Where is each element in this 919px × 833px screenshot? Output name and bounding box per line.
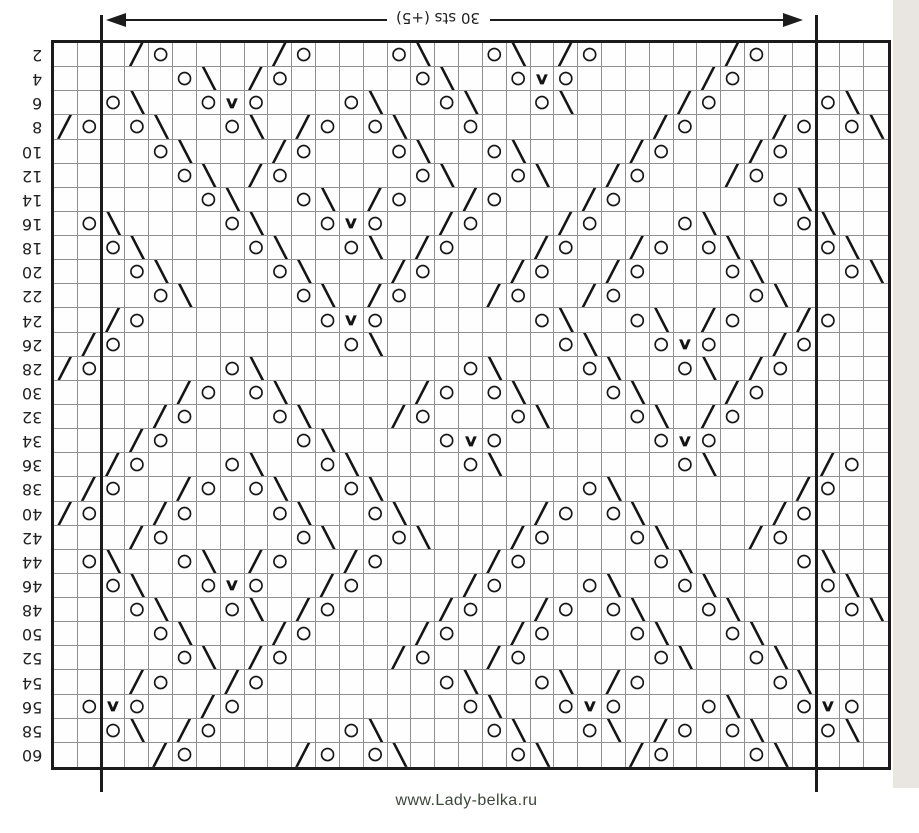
grid-cell — [340, 140, 364, 164]
ssk-icon: ╲ — [678, 550, 692, 573]
ssk-icon: ╲ — [702, 212, 716, 235]
yarn-over-icon: ○ — [153, 432, 168, 449]
double-decrease-icon: ∨ — [677, 433, 693, 449]
yarn-over-icon: ○ — [630, 312, 645, 329]
grid-cell — [149, 550, 173, 574]
grid-cell — [650, 67, 674, 91]
grid-cell: ○ — [78, 115, 102, 139]
grid-cell — [650, 43, 674, 67]
k2tog-icon: ╱ — [797, 477, 811, 500]
grid-cell — [864, 453, 888, 477]
grid-cell — [483, 526, 507, 550]
grid-cell: ○ — [102, 333, 126, 357]
grid-cell: ○ — [602, 284, 626, 308]
k2tog-icon: ╱ — [821, 453, 835, 476]
grid-cell — [721, 91, 745, 115]
grid-cell: ○ — [745, 284, 769, 308]
row-number-label: 50 — [4, 622, 46, 646]
grid-cell — [149, 236, 173, 260]
k2tog-icon: ╱ — [726, 43, 740, 66]
grid-cell — [817, 526, 841, 550]
grid-cell — [674, 43, 698, 67]
grid-cell — [78, 91, 102, 115]
grid-cell: ╱ — [292, 743, 316, 767]
grid-cell — [864, 212, 888, 236]
yarn-over-icon: ○ — [749, 384, 764, 401]
grid-cell — [578, 453, 602, 477]
grid-cell: ○ — [745, 646, 769, 670]
ssk-icon: ╲ — [392, 115, 406, 138]
ssk-icon: ╲ — [750, 622, 764, 645]
grid-cell — [745, 91, 769, 115]
grid-cell — [864, 429, 888, 453]
grid-cell — [554, 429, 578, 453]
grid-cell — [435, 574, 459, 598]
row-number-label: 34 — [4, 429, 46, 453]
grid-cell — [173, 91, 197, 115]
grid-cell — [388, 333, 412, 357]
grid-cell — [459, 719, 483, 743]
grid-cell: ○ — [364, 115, 388, 139]
ssk-icon: ╲ — [154, 115, 168, 138]
grid-cell — [149, 695, 173, 719]
grid-cell: ○ — [650, 550, 674, 574]
grid-cell — [364, 646, 388, 670]
grid-cell — [554, 164, 578, 188]
k2tog-icon: ╱ — [178, 719, 192, 742]
grid-cell — [78, 743, 102, 767]
grid-cell — [554, 140, 578, 164]
grid-cell: ○ — [554, 598, 578, 622]
grid-cell — [125, 743, 149, 767]
k2tog-icon: ╱ — [225, 671, 239, 694]
grid-cell — [435, 405, 459, 429]
yarn-over-icon: ○ — [606, 601, 621, 618]
arrow-line-left — [123, 19, 387, 21]
yarn-over-icon: ○ — [129, 263, 144, 280]
yarn-over-icon: ○ — [678, 456, 693, 473]
row-number-text: 8 — [32, 119, 42, 135]
row-number-text: 12 — [22, 168, 42, 184]
grid-cell — [721, 743, 745, 767]
grid-cell: ○ — [507, 550, 531, 574]
grid-cell: ○ — [602, 598, 626, 622]
yarn-over-icon: ○ — [773, 360, 788, 377]
grid-cell — [411, 333, 435, 357]
grid-cell — [674, 188, 698, 212]
grid-cell — [149, 477, 173, 501]
grid-cell — [745, 429, 769, 453]
grid-cell — [745, 502, 769, 526]
grid-cell: ○ — [245, 381, 269, 405]
grid-cell — [221, 502, 245, 526]
grid-cell: ╲ — [507, 719, 531, 743]
grid-cell: ○ — [817, 574, 841, 598]
grid-cell: ╲ — [745, 622, 769, 646]
yarn-over-icon: ○ — [558, 336, 573, 353]
yarn-over-icon: ○ — [749, 287, 764, 304]
grid-cell: ╲ — [364, 333, 388, 357]
ssk-icon: ╲ — [273, 477, 287, 500]
row-number-text: 20 — [22, 264, 42, 280]
grid-cell — [769, 212, 793, 236]
grid-cell — [102, 598, 126, 622]
grid-cell: ╲ — [602, 477, 626, 501]
grid-cell: ○ — [149, 429, 173, 453]
yarn-over-icon: ○ — [678, 118, 693, 135]
grid-cell: ╲ — [125, 719, 149, 743]
grid-cell — [435, 140, 459, 164]
grid-cell: ╱ — [531, 502, 555, 526]
grid-cell: ○ — [697, 695, 721, 719]
k2tog-icon: ╱ — [750, 140, 764, 163]
grid-cell — [340, 670, 364, 694]
grid-cell: ○ — [531, 308, 555, 332]
yarn-over-icon: ○ — [249, 94, 264, 111]
grid-cell — [864, 405, 888, 429]
k2tog-icon: ╱ — [273, 43, 287, 66]
grid-cell — [435, 695, 459, 719]
row-number-text: 18 — [22, 240, 42, 256]
row-number-label: 14 — [4, 188, 46, 212]
yarn-over-icon: ○ — [797, 505, 812, 522]
yarn-over-icon: ○ — [129, 456, 144, 473]
row-number-text: 40 — [22, 506, 42, 522]
grid-cell — [388, 598, 412, 622]
grid-cell — [483, 405, 507, 429]
grid-cell — [531, 115, 555, 139]
yarn-over-icon: ○ — [463, 118, 478, 135]
grid-cell — [507, 695, 531, 719]
grid-cell — [864, 381, 888, 405]
grid-cell — [435, 308, 459, 332]
grid-cell — [793, 67, 817, 91]
ssk-icon: ╲ — [368, 91, 382, 114]
k2tog-icon: ╱ — [511, 260, 525, 283]
ssk-icon: ╲ — [845, 719, 859, 742]
k2tog-icon: ╱ — [559, 212, 573, 235]
ssk-icon: ╲ — [130, 719, 144, 742]
k2tog-icon: ╱ — [249, 550, 263, 573]
grid-cell — [817, 43, 841, 67]
grid-cell — [292, 236, 316, 260]
yarn-over-icon: ○ — [106, 94, 121, 111]
grid-cell — [340, 598, 364, 622]
grid-cell: ╲ — [793, 188, 817, 212]
grid-cell — [578, 405, 602, 429]
grid-cell: ╲ — [316, 429, 340, 453]
k2tog-icon: ╱ — [535, 502, 549, 525]
grid-cell: ○ — [507, 646, 531, 670]
grid-cell: ╱ — [102, 453, 126, 477]
grid-cell — [435, 502, 459, 526]
grid-cell — [745, 67, 769, 91]
grid-cell: ╲ — [697, 574, 721, 598]
grid-cell — [197, 526, 221, 550]
grid-cell: ╲ — [388, 115, 412, 139]
grid-cell — [316, 140, 340, 164]
grid-cell — [697, 260, 721, 284]
yarn-over-icon: ○ — [463, 456, 478, 473]
grid-cell — [864, 743, 888, 767]
grid-cell: ○ — [793, 212, 817, 236]
grid-cell — [793, 43, 817, 67]
yarn-over-icon: ○ — [368, 312, 383, 329]
yarn-over-icon: ○ — [177, 649, 192, 666]
grid-cell — [54, 260, 78, 284]
grid-cell — [197, 670, 221, 694]
grid-cell — [674, 695, 698, 719]
grid-cell — [864, 670, 888, 694]
grid-cell — [554, 477, 578, 501]
ssk-icon: ╲ — [368, 477, 382, 500]
grid-cell: ○ — [268, 260, 292, 284]
grid-cell: ╲ — [292, 502, 316, 526]
grid-cell: ╲ — [483, 357, 507, 381]
grid-cell — [602, 308, 626, 332]
grid-cell — [54, 598, 78, 622]
grid-cell — [78, 453, 102, 477]
grid-cell — [54, 526, 78, 550]
grid-cell — [793, 719, 817, 743]
grid-cell: ╱ — [54, 357, 78, 381]
grid-cell: ╲ — [483, 695, 507, 719]
grid-cell — [531, 140, 555, 164]
grid-cell — [554, 453, 578, 477]
grid-cell — [483, 91, 507, 115]
grid-cell — [626, 477, 650, 501]
grid-cell — [578, 115, 602, 139]
grid-cell: ∨ — [817, 695, 841, 719]
grid-cell — [697, 526, 721, 550]
grid-cell: ○ — [435, 236, 459, 260]
grid-cell — [435, 357, 459, 381]
grid-cell — [721, 502, 745, 526]
grid-cell — [459, 381, 483, 405]
yarn-over-icon: ○ — [725, 722, 740, 739]
yarn-over-icon: ○ — [225, 456, 240, 473]
grid-cell: ○ — [340, 477, 364, 501]
yarn-over-icon: ○ — [630, 674, 645, 691]
grid-cell — [578, 622, 602, 646]
grid-cell — [817, 429, 841, 453]
grid-cell — [864, 526, 888, 550]
grid-cell: ○ — [245, 477, 269, 501]
grid-cell — [793, 357, 817, 381]
grid-cell — [864, 477, 888, 501]
grid-cell — [721, 429, 745, 453]
grid-cell — [292, 477, 316, 501]
grid-cell: ╲ — [173, 284, 197, 308]
yarn-over-icon: ○ — [106, 722, 121, 739]
grid-cell: ╲ — [411, 43, 435, 67]
k2tog-icon: ╱ — [702, 405, 716, 428]
yarn-over-icon: ○ — [773, 191, 788, 208]
grid-cell — [745, 212, 769, 236]
grid-cell — [650, 260, 674, 284]
grid-cell — [102, 357, 126, 381]
grid-cell: ○ — [245, 670, 269, 694]
grid-cell: ╱ — [531, 236, 555, 260]
grid-cell: ╲ — [626, 598, 650, 622]
grid-cell: ╱ — [626, 236, 650, 260]
grid-cell — [245, 140, 269, 164]
yarn-over-icon: ○ — [439, 384, 454, 401]
grid-cell — [674, 284, 698, 308]
yarn-over-icon: ○ — [463, 698, 478, 715]
yarn-over-icon: ○ — [654, 239, 669, 256]
grid-cell — [268, 333, 292, 357]
yarn-over-icon: ○ — [153, 287, 168, 304]
grid-cell: ╲ — [173, 140, 197, 164]
grid-cell — [125, 333, 149, 357]
grid-cell: ╱ — [149, 743, 173, 767]
grid-cell — [173, 357, 197, 381]
grid-cell — [817, 164, 841, 188]
yarn-over-icon: ○ — [106, 577, 121, 594]
grid-cell — [149, 357, 173, 381]
k2tog-icon: ╱ — [630, 140, 644, 163]
yarn-over-icon: ○ — [582, 577, 597, 594]
grid-cell: ╲ — [149, 260, 173, 284]
grid-cell — [578, 598, 602, 622]
grid-cell — [864, 574, 888, 598]
row-number-text: 56 — [22, 699, 42, 715]
grid-cell: ○ — [78, 357, 102, 381]
grid-cell — [292, 719, 316, 743]
grid-cell — [54, 670, 78, 694]
grid-cell — [316, 695, 340, 719]
grid-cell — [459, 405, 483, 429]
grid-cell — [864, 695, 888, 719]
grid-cell — [745, 574, 769, 598]
grid-cell: ╲ — [197, 67, 221, 91]
grid-cell — [769, 622, 793, 646]
ssk-icon: ╲ — [511, 140, 525, 163]
grid-cell — [554, 719, 578, 743]
grid-cell: ╱ — [268, 140, 292, 164]
k2tog-icon: ╱ — [535, 236, 549, 259]
grid-cell — [435, 550, 459, 574]
grid-cell — [102, 670, 126, 694]
k2tog-icon: ╱ — [583, 188, 597, 211]
grid-cell — [149, 381, 173, 405]
grid-cell — [197, 236, 221, 260]
grid-cell: ╱ — [364, 188, 388, 212]
grid-cell: ○ — [435, 429, 459, 453]
yarn-over-icon: ○ — [225, 215, 240, 232]
grid-cell: ╲ — [125, 236, 149, 260]
grid-cell — [864, 236, 888, 260]
grid-cell — [221, 140, 245, 164]
grid-cell — [411, 695, 435, 719]
grid-cell — [221, 550, 245, 574]
grid-cell — [554, 188, 578, 212]
grid-cell — [388, 670, 412, 694]
grid-cell: ○ — [411, 405, 435, 429]
grid-cell: ○ — [149, 622, 173, 646]
grid-cell — [459, 43, 483, 67]
grid-cell: ○ — [340, 91, 364, 115]
grid-cell — [697, 115, 721, 139]
k2tog-icon: ╱ — [630, 236, 644, 259]
grid-cell — [54, 67, 78, 91]
grid-cell: ○ — [459, 212, 483, 236]
ssk-icon: ╲ — [201, 164, 215, 187]
grid-cell — [364, 574, 388, 598]
grid-cell — [697, 164, 721, 188]
grid-cell: ○ — [745, 381, 769, 405]
grid-cell — [364, 526, 388, 550]
grid-cell: ○ — [411, 646, 435, 670]
grid-cell — [840, 212, 864, 236]
grid-cell — [102, 502, 126, 526]
grid-cell — [721, 526, 745, 550]
grid-cell — [745, 598, 769, 622]
grid-cell: ○ — [817, 236, 841, 260]
grid-cell — [721, 477, 745, 501]
grid-cell — [697, 646, 721, 670]
grid-cell — [388, 381, 412, 405]
grid-cell — [173, 695, 197, 719]
grid-cell: ○ — [793, 333, 817, 357]
row-number-text: 24 — [22, 313, 42, 329]
ssk-icon: ╲ — [773, 284, 787, 307]
grid-cell: ╱ — [745, 526, 769, 550]
grid-cell: ○ — [650, 429, 674, 453]
yarn-over-icon: ○ — [844, 456, 859, 473]
grid-cell — [507, 453, 531, 477]
grid-cell — [578, 67, 602, 91]
grid-cell: ╲ — [578, 333, 602, 357]
grid-cell — [364, 381, 388, 405]
row-number-text: 32 — [22, 409, 42, 425]
grid-cell — [54, 574, 78, 598]
row-number-text: 6 — [32, 95, 42, 111]
grid-cell — [697, 670, 721, 694]
grid-cell: ○ — [388, 526, 412, 550]
grid-cell — [578, 381, 602, 405]
grid-cell — [817, 598, 841, 622]
grid-cell — [197, 405, 221, 429]
yarn-over-icon: ○ — [106, 336, 121, 353]
ssk-icon: ╲ — [607, 477, 621, 500]
row-number-text: 48 — [22, 602, 42, 618]
ssk-icon: ╲ — [201, 646, 215, 669]
grid-cell: ╱ — [697, 67, 721, 91]
yarn-over-icon: ○ — [320, 215, 335, 232]
grid-cell: ○ — [793, 550, 817, 574]
yarn-over-icon: ○ — [106, 480, 121, 497]
grid-cell — [54, 381, 78, 405]
grid-cell — [578, 236, 602, 260]
grid-cell — [364, 598, 388, 622]
grid-cell: ╲ — [245, 598, 269, 622]
grid-cell: ○ — [697, 598, 721, 622]
grid-cell — [54, 646, 78, 670]
k2tog-icon: ╱ — [583, 284, 597, 307]
grid-cell — [268, 308, 292, 332]
yarn-over-icon: ○ — [153, 625, 168, 642]
grid-cell: ╲ — [245, 212, 269, 236]
grid-cell — [745, 670, 769, 694]
grid-cell — [674, 260, 698, 284]
grid-cell — [388, 695, 412, 719]
grid-cell: ╱ — [78, 477, 102, 501]
grid-cell: ○ — [316, 598, 340, 622]
grid-cell: ○ — [697, 429, 721, 453]
grid-cell — [578, 429, 602, 453]
